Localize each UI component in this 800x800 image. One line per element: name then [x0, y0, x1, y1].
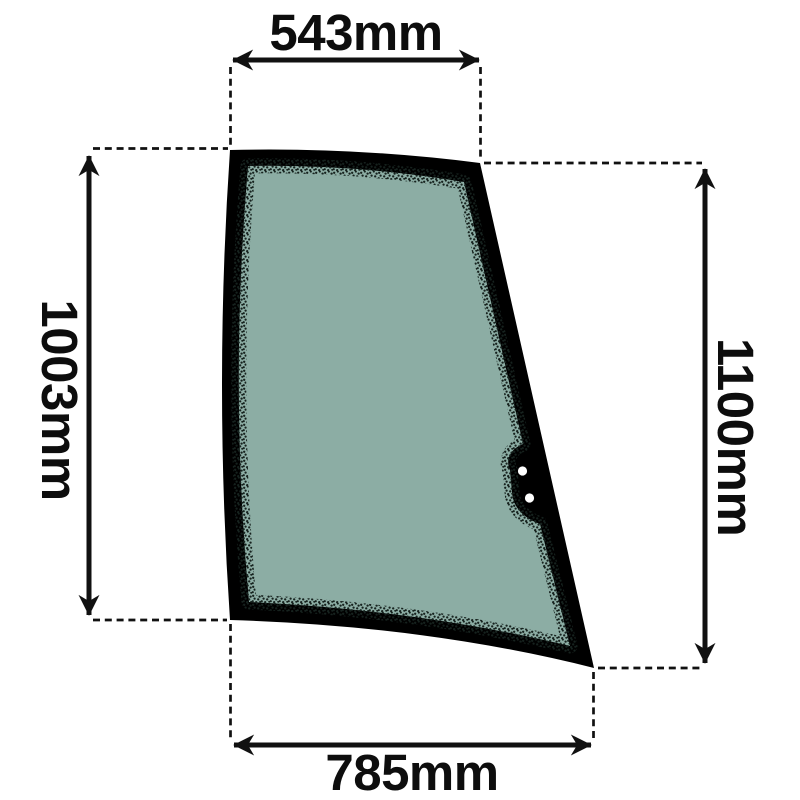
dimension-label-right: 1100mm: [707, 338, 764, 536]
dimension-label-top: 543mm: [269, 4, 442, 61]
glass-panel: [222, 150, 594, 668]
bracket-hole-top: [518, 466, 527, 475]
dimension-left: 1003mm: [31, 149, 228, 621]
dimension-top: 543mm: [231, 4, 481, 159]
glass-surface: [239, 166, 570, 646]
dimension-label-bottom: 785mm: [325, 744, 498, 800]
glass-dimension-drawing: 543mm 1003mm 1100mm 785mm: [0, 0, 800, 800]
bracket-hole-bottom: [525, 493, 534, 502]
dimension-label-left: 1003mm: [31, 299, 88, 500]
diagram-canvas: 543mm 1003mm 1100mm 785mm: [0, 0, 800, 800]
